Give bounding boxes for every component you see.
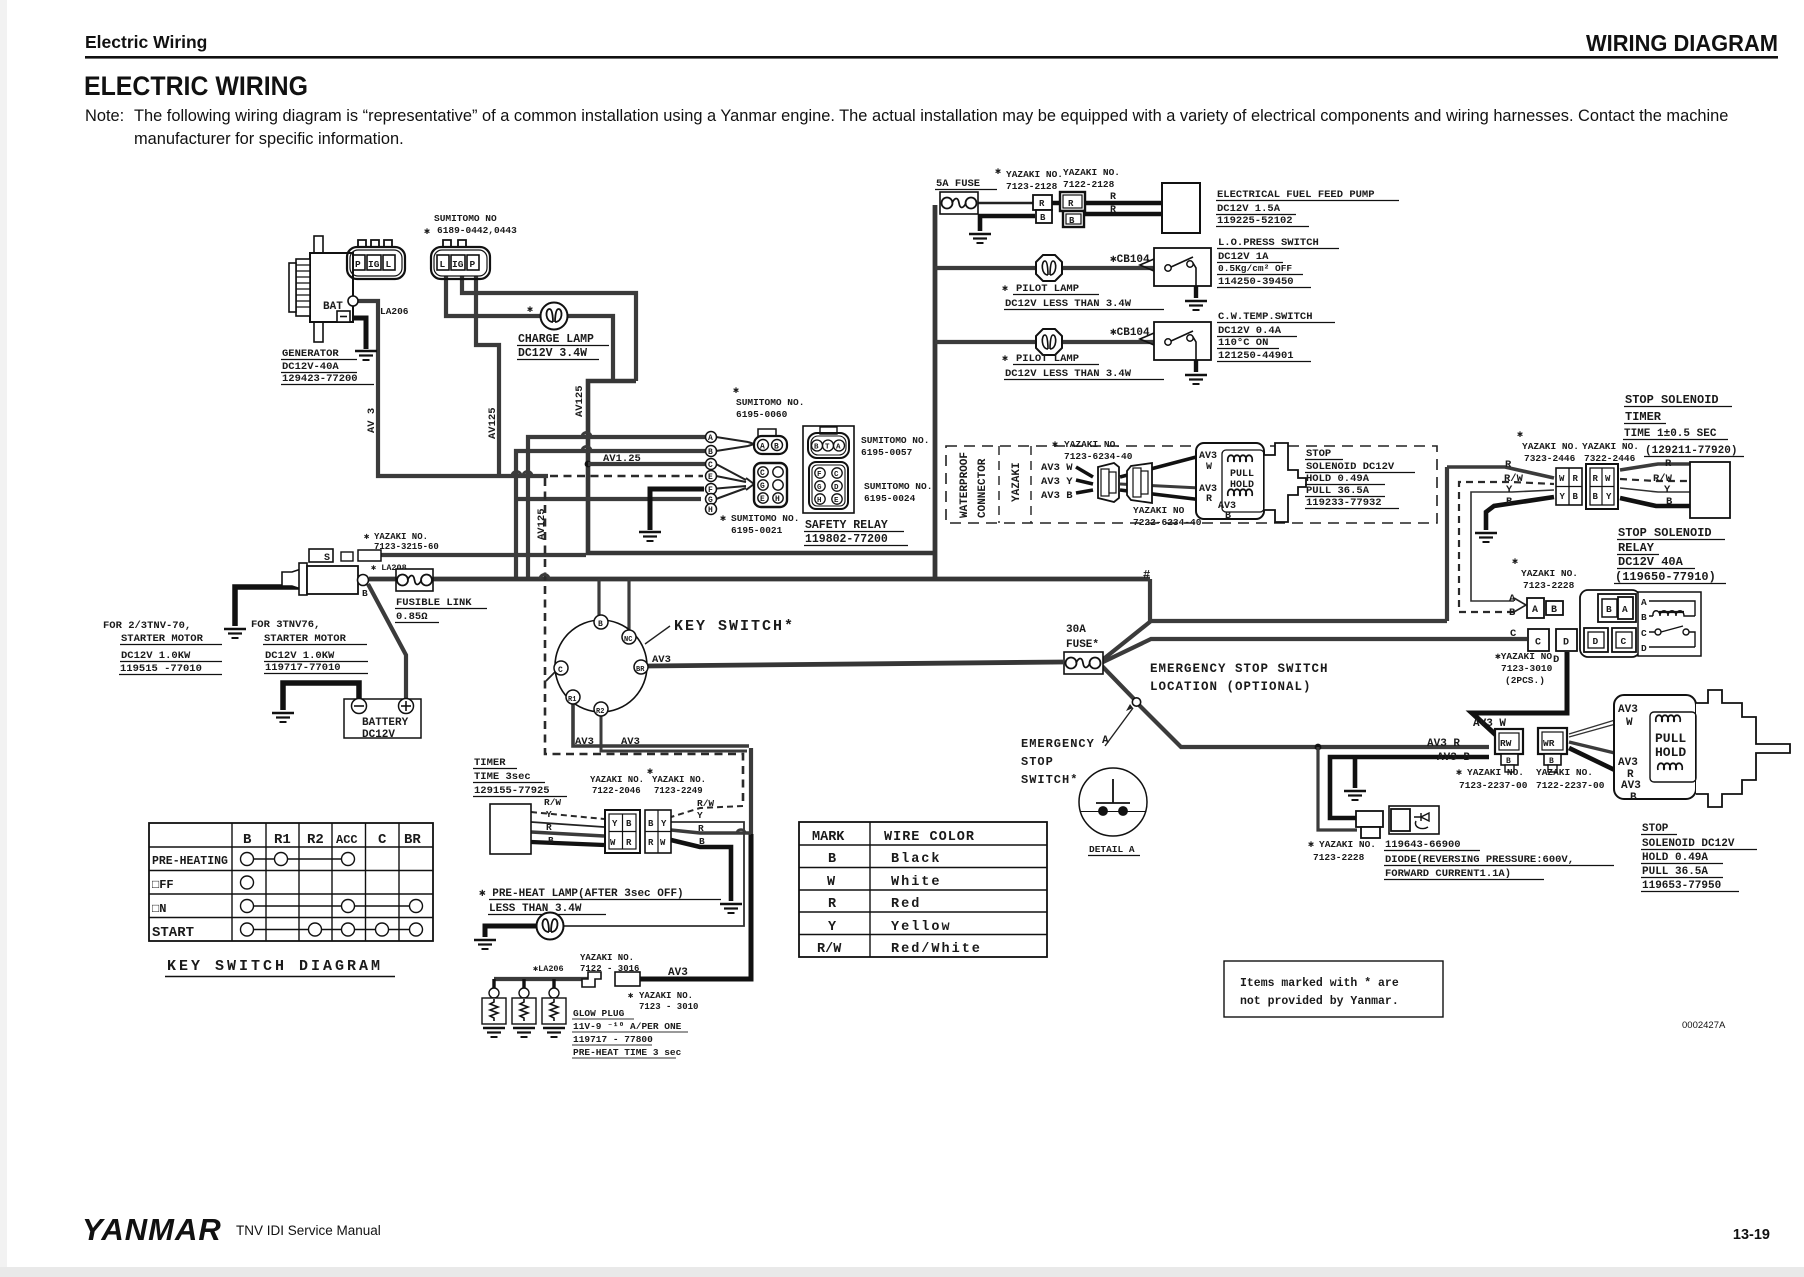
svg-text:Y: Y: [828, 920, 837, 935]
svg-text:Yellow: Yellow: [891, 920, 952, 935]
svg-text:D: D: [1593, 636, 1599, 647]
svg-text:KEY SWITCH DIAGRAM: KEY SWITCH DIAGRAM: [167, 958, 383, 975]
svg-text:TIME 3sec: TIME 3sec: [474, 771, 531, 783]
svg-text:DC12V 1A: DC12V 1A: [1218, 251, 1269, 263]
svg-text:DC12V LESS THAN 3.4W: DC12V LESS THAN 3.4W: [1005, 298, 1132, 310]
svg-text:SUMITOMO NO.: SUMITOMO NO.: [731, 513, 799, 524]
svg-text:YAZAKI NO.: YAZAKI NO.: [1536, 767, 1593, 778]
svg-text:✱: ✱: [424, 227, 430, 238]
svg-text:LESS THAN 3.4W: LESS THAN 3.4W: [489, 903, 582, 915]
svg-text:✱: ✱: [1052, 440, 1058, 451]
svg-text:Y: Y: [697, 810, 703, 821]
svg-text:STARTER MOTOR: STARTER MOTOR: [121, 633, 204, 645]
svg-text:B: B: [1630, 792, 1637, 804]
svg-text:HOLD: HOLD: [1655, 745, 1686, 760]
svg-text:GLOW PLUG: GLOW PLUG: [573, 1008, 625, 1019]
svg-text:✱: ✱: [628, 991, 634, 1001]
svg-text:B: B: [362, 588, 368, 599]
svg-text:Y: Y: [1606, 492, 1612, 502]
svg-text:7322-2446: 7322-2446: [1584, 453, 1636, 464]
svg-text:B: B: [699, 836, 705, 847]
svg-text:B: B: [626, 819, 632, 829]
svg-text:TIME 1±0.5 SEC: TIME 1±0.5 SEC: [1624, 428, 1717, 440]
svg-text:0002427A: 0002427A: [1682, 1020, 1726, 1031]
svg-text:Y: Y: [1664, 484, 1671, 496]
svg-text:KEY SWITCH*: KEY SWITCH*: [674, 618, 795, 635]
svg-text:B: B: [1069, 216, 1075, 226]
svg-text:BR: BR: [636, 666, 645, 674]
svg-text:C: C: [1641, 628, 1647, 639]
svg-text:YAZAKI NO.: YAZAKI NO.: [1521, 568, 1578, 579]
svg-text:R: R: [698, 823, 704, 834]
svg-text:NC: NC: [624, 636, 632, 644]
svg-text:✱YAZAKI NO.: ✱YAZAKI NO.: [1495, 651, 1558, 662]
svg-text:CHARGE LAMP: CHARGE LAMP: [518, 333, 594, 346]
svg-text:Items marked with * are: Items marked with * are: [1240, 977, 1399, 990]
svg-text:Y: Y: [1506, 484, 1513, 496]
svg-text:YAZAKI NO: YAZAKI NO: [1133, 505, 1185, 516]
svg-text:START: START: [152, 925, 194, 941]
svg-text:R: R: [1573, 474, 1579, 484]
svg-text:PRE-HEATING: PRE-HEATING: [152, 855, 228, 868]
svg-text:□N: □N: [152, 902, 166, 916]
svg-text:YAZAKI NO.: YAZAKI NO.: [1319, 839, 1376, 850]
svg-text:30A: 30A: [1066, 624, 1086, 636]
svg-text:A: A: [760, 443, 765, 452]
svg-text:AV3: AV3: [1618, 757, 1638, 769]
svg-text:A: A: [1532, 605, 1538, 616]
svg-text:YAZAKI NO.: YAZAKI NO.: [590, 775, 644, 785]
svg-text:AV 3: AV 3: [366, 408, 378, 433]
svg-text:R/W: R/W: [817, 942, 842, 957]
svg-text:C: C: [1535, 638, 1541, 649]
svg-text:✱: ✱: [733, 386, 739, 397]
svg-text:YAZAKI NO.: YAZAKI NO.: [1063, 167, 1120, 178]
svg-text:0.85Ω: 0.85Ω: [396, 611, 428, 623]
svg-text:Y: Y: [1560, 492, 1566, 502]
svg-text:not provided by Yanmar.: not provided by Yanmar.: [1240, 995, 1399, 1008]
svg-text:R/W: R/W: [697, 798, 714, 809]
svg-text:R2: R2: [596, 708, 604, 716]
svg-text:AV3 Y: AV3 Y: [1041, 476, 1073, 488]
svg-text:AV3: AV3: [621, 736, 640, 748]
svg-text:7123-2228: 7123-2228: [1313, 852, 1365, 863]
svg-text:C: C: [708, 461, 713, 470]
svg-text:W: W: [660, 838, 666, 848]
svg-text:WR: WR: [1543, 738, 1555, 749]
svg-text:YAZAKI: YAZAKI: [1011, 462, 1023, 502]
svg-text:DIODE(REVERSING PRESSURE:600V,: DIODE(REVERSING PRESSURE:600V,: [1385, 854, 1574, 866]
svg-text:6189-0442,0443: 6189-0442,0443: [437, 225, 517, 236]
svg-text:SWITCH*: SWITCH*: [1021, 773, 1078, 787]
svg-text:D: D: [1553, 654, 1559, 666]
svg-text:P: P: [355, 259, 361, 270]
svg-text:PRE-HEAT TIME 3 sec: PRE-HEAT TIME 3 sec: [573, 1047, 682, 1058]
svg-text:B: B: [828, 852, 836, 867]
svg-text:DC12V-40A: DC12V-40A: [282, 361, 339, 373]
svg-text:✱: ✱: [1308, 840, 1314, 851]
svg-text:DC12V LESS THAN 3.4W: DC12V LESS THAN 3.4W: [1005, 368, 1132, 380]
svg-text:7122-2046: 7122-2046: [592, 786, 641, 796]
svg-text:IG: IG: [452, 259, 464, 270]
svg-text:R: R: [1206, 494, 1212, 505]
svg-text:TIMER: TIMER: [1625, 410, 1662, 424]
svg-text:R: R: [1593, 474, 1599, 484]
svg-text:119515 -77010: 119515 -77010: [120, 663, 202, 675]
svg-text:L: L: [386, 259, 392, 270]
svg-text:WIRE COLOR: WIRE COLOR: [884, 830, 975, 845]
svg-text:S: S: [324, 553, 330, 564]
svg-text:7123 - 3010: 7123 - 3010: [639, 1002, 698, 1012]
svg-text:R1: R1: [274, 832, 291, 848]
svg-text:7123-3010: 7123-3010: [1501, 663, 1553, 674]
svg-text:SOLENOID DC12V: SOLENOID DC12V: [1642, 838, 1735, 850]
svg-text:YAZAKI NO.: YAZAKI NO.: [1064, 439, 1121, 450]
svg-text:YAZAKI NO.: YAZAKI NO.: [1522, 441, 1579, 452]
svg-text:13-19: 13-19: [1733, 1227, 1770, 1243]
svg-text:PULL 36.5A: PULL 36.5A: [1642, 866, 1708, 878]
svg-text:YAZAKI NO.: YAZAKI NO.: [652, 775, 706, 785]
svg-text:119802-77200: 119802-77200: [805, 533, 888, 546]
svg-text:✱: ✱: [995, 167, 1001, 178]
svg-text:FOR 3TNV76,: FOR 3TNV76,: [251, 619, 320, 631]
svg-text:110°C ON: 110°C ON: [1218, 337, 1268, 349]
svg-text:Y: Y: [546, 809, 552, 820]
svg-text:Y: Y: [661, 819, 667, 829]
svg-text:DC12V: DC12V: [362, 729, 395, 741]
svg-text:F: F: [708, 486, 713, 495]
svg-text:(129211-77920): (129211-77920): [1645, 445, 1737, 457]
svg-text:7123-2228: 7123-2228: [1523, 580, 1575, 591]
svg-text:W: W: [1559, 474, 1565, 484]
svg-text:AV3 B: AV3 B: [1041, 490, 1073, 502]
svg-text:121250-44901: 121250-44901: [1218, 350, 1294, 362]
svg-text:119233-77932: 119233-77932: [1306, 497, 1382, 509]
svg-text:B: B: [1549, 757, 1554, 766]
svg-text:EMERGENCY STOP SWITCH: EMERGENCY STOP SWITCH: [1150, 662, 1329, 676]
svg-text:B: B: [774, 443, 779, 452]
svg-text:B: B: [1506, 496, 1513, 508]
svg-text:L: L: [440, 259, 446, 270]
svg-text:6195-0021: 6195-0021: [731, 525, 783, 536]
svg-text:B: B: [1666, 496, 1673, 508]
svg-text:119643-66900: 119643-66900: [1385, 839, 1461, 851]
svg-text:✱: ✱: [1002, 284, 1008, 295]
svg-text:A: A: [1102, 735, 1109, 747]
svg-text:7323-2446: 7323-2446: [1524, 453, 1576, 464]
svg-text:TNV IDI Service Manual: TNV IDI Service Manual: [236, 1223, 381, 1238]
svg-text:PILOT LAMP: PILOT LAMP: [1016, 283, 1079, 295]
svg-text:Red: Red: [891, 897, 921, 912]
svg-text:✱: ✱: [364, 532, 370, 542]
svg-text:H: H: [775, 495, 780, 504]
svg-text:MARK: MARK: [812, 830, 845, 845]
svg-text:ACC: ACC: [336, 833, 358, 847]
svg-text:119653-77950: 119653-77950: [1642, 880, 1721, 892]
svg-text:DC12V 0.4A: DC12V 0.4A: [1218, 325, 1282, 337]
svg-text:HOLD: HOLD: [1230, 480, 1254, 491]
svg-text:✱: ✱: [1002, 354, 1008, 365]
svg-text:✱ PRE-HEAT LAMP(AFTER 3sec OFF: ✱ PRE-HEAT LAMP(AFTER 3sec OFF): [479, 888, 684, 900]
svg-text:SUMITOMO NO: SUMITOMO NO: [434, 213, 497, 224]
svg-text:0.5Kg/cm² OFF: 0.5Kg/cm² OFF: [1218, 263, 1292, 274]
svg-text:B: B: [814, 444, 819, 452]
svg-text:B: B: [1509, 607, 1516, 619]
svg-text:W: W: [1206, 462, 1212, 473]
svg-text:STOP SOLENOID: STOP SOLENOID: [1625, 393, 1719, 407]
svg-text:A: A: [1509, 593, 1516, 605]
svg-text:7222-6234-40: 7222-6234-40: [1133, 517, 1202, 528]
svg-text:ELECTRICAL FUEL FEED PUMP: ELECTRICAL FUEL FEED PUMP: [1217, 189, 1375, 201]
svg-text:C.W.TEMP.SWITCH: C.W.TEMP.SWITCH: [1218, 311, 1313, 323]
svg-text:The following wiring diagram i: The following wiring diagram is “represe…: [134, 107, 1728, 125]
svg-text:B: B: [1506, 757, 1511, 766]
svg-text:R: R: [1039, 199, 1045, 209]
svg-text:129155-77925: 129155-77925: [474, 785, 550, 797]
svg-text:HOLD 0.49A: HOLD 0.49A: [1642, 852, 1708, 864]
svg-text:FOR 2/3TNV-70,: FOR 2/3TNV-70,: [103, 620, 191, 632]
svg-text:(2PCS.): (2PCS.): [1505, 675, 1545, 686]
svg-text:AV3: AV3: [1621, 780, 1641, 792]
svg-text:IG: IG: [368, 259, 380, 270]
svg-text:7122-2128: 7122-2128: [1063, 179, 1115, 190]
svg-text:R: R: [1068, 199, 1074, 209]
svg-text:Electric Wiring: Electric Wiring: [85, 32, 207, 52]
svg-text:manufacturer for specific info: manufacturer for specific information.: [134, 130, 404, 148]
svg-text:7123-6234-40: 7123-6234-40: [1064, 451, 1133, 462]
svg-text:W: W: [827, 875, 836, 890]
svg-text:B: B: [708, 448, 713, 457]
svg-text:#: #: [1143, 568, 1150, 582]
svg-text:D: D: [1641, 643, 1647, 654]
svg-text:BAT: BAT: [323, 301, 343, 313]
svg-text:AV3 W: AV3 W: [1041, 462, 1073, 474]
svg-text:7123-2128: 7123-2128: [1006, 181, 1058, 192]
svg-text:BATTERY: BATTERY: [362, 717, 409, 729]
svg-text:✱LA206: ✱LA206: [533, 964, 564, 974]
svg-text:A: A: [1641, 597, 1647, 608]
svg-text:A: A: [1622, 604, 1628, 615]
svg-text:B: B: [1593, 492, 1599, 502]
svg-text:E: E: [834, 497, 839, 505]
svg-text:AV3: AV3: [1199, 451, 1217, 462]
svg-text:✱: ✱: [527, 305, 533, 316]
svg-text:✱: ✱: [1512, 557, 1518, 568]
svg-text:AV3 R: AV3 R: [1427, 738, 1460, 750]
svg-text:BR: BR: [404, 832, 421, 848]
svg-text:B: B: [1040, 213, 1046, 223]
svg-text:7123-3215-60: 7123-3215-60: [374, 542, 439, 552]
svg-text:YAZAKI NO.: YAZAKI NO.: [580, 953, 634, 963]
svg-text:C: C: [558, 666, 563, 675]
svg-text:R/W: R/W: [544, 797, 561, 808]
svg-text:AV3: AV3: [652, 654, 671, 666]
svg-text:SOLENOID DC12V: SOLENOID DC12V: [1306, 461, 1395, 473]
svg-text:SUMITOMO NO.: SUMITOMO NO.: [864, 481, 932, 492]
svg-text:AV125: AV125: [487, 407, 499, 439]
svg-text:YANMAR: YANMAR: [82, 1212, 222, 1247]
svg-text:B: B: [1573, 492, 1579, 502]
svg-text:SUMITOMO NO.: SUMITOMO NO.: [736, 397, 804, 408]
svg-text:STOP SOLENOID: STOP SOLENOID: [1618, 526, 1712, 540]
svg-text:(119650-77910): (119650-77910): [1615, 570, 1716, 584]
svg-text:W: W: [1605, 474, 1611, 484]
svg-text:T: T: [825, 444, 830, 452]
svg-text:5A FUSE: 5A FUSE: [936, 178, 980, 190]
svg-text:W: W: [1626, 717, 1633, 729]
svg-text:DC12V 1.0KW: DC12V 1.0KW: [265, 650, 335, 662]
svg-text:D: D: [834, 484, 839, 492]
svg-text:B: B: [1606, 604, 1612, 615]
svg-text:E: E: [760, 495, 765, 504]
svg-text:PULL 36.5A: PULL 36.5A: [1306, 485, 1370, 497]
svg-text:7123-2237-00: 7123-2237-00: [1459, 780, 1528, 791]
svg-text:A: A: [708, 434, 713, 443]
svg-text:AV3: AV3: [668, 967, 688, 979]
svg-text:R: R: [648, 838, 654, 848]
svg-text:G: G: [817, 484, 822, 492]
svg-text:✱: ✱: [1456, 768, 1462, 779]
svg-text:R: R: [1505, 459, 1512, 471]
svg-text:D: D: [1563, 638, 1569, 649]
svg-text:EMERGENCY: EMERGENCY: [1021, 737, 1095, 751]
svg-text:C: C: [1510, 628, 1517, 640]
svg-text:YAZAKI NO.: YAZAKI NO.: [1582, 441, 1639, 452]
svg-text:AV125: AV125: [536, 508, 548, 540]
svg-text:6195-0060: 6195-0060: [736, 409, 788, 420]
svg-text:Black: Black: [891, 852, 942, 867]
svg-text:R1: R1: [568, 696, 576, 704]
svg-text:C: C: [834, 471, 839, 479]
svg-text:SUMITOMO NO.: SUMITOMO NO.: [861, 435, 929, 446]
svg-text:G: G: [708, 496, 713, 505]
svg-text:119717-77010: 119717-77010: [265, 662, 341, 674]
svg-text:WIRING DIAGRAM: WIRING DIAGRAM: [1586, 30, 1778, 56]
svg-text:129423-77200: 129423-77200: [282, 373, 358, 385]
svg-text:119717 - 77800: 119717 - 77800: [573, 1034, 653, 1045]
svg-text:GENERATOR: GENERATOR: [282, 348, 339, 360]
svg-text:B: B: [1225, 511, 1231, 522]
svg-text:YAZAKI NO.: YAZAKI NO.: [374, 532, 428, 542]
svg-text:SAFETY RELAY: SAFETY RELAY: [805, 519, 888, 532]
svg-text:R: R: [1110, 205, 1116, 216]
svg-text:P: P: [470, 259, 476, 270]
svg-text:AV1.25: AV1.25: [603, 453, 641, 465]
svg-text:7122-2237-00: 7122-2237-00: [1536, 780, 1605, 791]
svg-text:✱: ✱: [1517, 430, 1523, 441]
svg-text:DC12V 1.5A: DC12V 1.5A: [1217, 203, 1281, 215]
svg-text:6195-0057: 6195-0057: [861, 447, 913, 458]
svg-text:□FF: □FF: [152, 878, 174, 892]
svg-text:B: B: [598, 620, 603, 629]
svg-text:R2: R2: [307, 832, 324, 848]
svg-text:6195-0024: 6195-0024: [864, 493, 916, 504]
svg-text:PULL: PULL: [1655, 731, 1686, 746]
svg-text:R: R: [546, 822, 552, 833]
svg-text:STOP: STOP: [1021, 755, 1054, 769]
svg-text:R: R: [1110, 192, 1116, 203]
svg-text:W: W: [610, 838, 616, 848]
svg-text:AV3: AV3: [575, 736, 594, 748]
svg-text:ELECTRIC WIRING: ELECTRIC WIRING: [84, 71, 308, 101]
svg-text:R: R: [828, 897, 837, 912]
svg-text:R: R: [1665, 458, 1672, 470]
svg-text:PULL: PULL: [1230, 469, 1254, 480]
svg-text:C: C: [378, 832, 387, 848]
svg-text:WATERPROOF: WATERPROOF: [959, 452, 971, 518]
svg-text:Y: Y: [612, 819, 618, 829]
svg-text:C: C: [1621, 636, 1627, 647]
svg-text:F: F: [817, 471, 822, 479]
svg-text:B: B: [1641, 612, 1647, 623]
svg-text:TIMER: TIMER: [474, 757, 506, 769]
svg-text:DC12V 3.4W: DC12V 3.4W: [518, 347, 587, 360]
svg-text:FUSIBLE LINK: FUSIBLE LINK: [396, 597, 472, 609]
svg-text:11V-9 ⁻¹⁰ A/PER ONE: 11V-9 ⁻¹⁰ A/PER ONE: [573, 1021, 682, 1032]
svg-text:L.O.PRESS SWITCH: L.O.PRESS SWITCH: [1218, 237, 1319, 249]
svg-text:A: A: [836, 444, 841, 452]
svg-text:FORWARD CURRENT1.1A): FORWARD CURRENT1.1A): [1385, 868, 1511, 880]
svg-text:HOLD 0.49A: HOLD 0.49A: [1306, 473, 1370, 485]
svg-text:YAZAKI NO.: YAZAKI NO.: [639, 991, 693, 1001]
svg-text:C: C: [760, 469, 765, 478]
svg-text:G: G: [760, 482, 765, 491]
svg-text:FUSE*: FUSE*: [1066, 639, 1099, 651]
svg-text:119225-52102: 119225-52102: [1217, 215, 1293, 227]
svg-text:STOP: STOP: [1642, 823, 1669, 835]
svg-text:AV125: AV125: [574, 385, 586, 417]
svg-text:R: R: [626, 838, 632, 848]
svg-text:CONNECTOR: CONNECTOR: [977, 458, 989, 518]
svg-text:B: B: [243, 832, 252, 848]
svg-text:LOCATION (OPTIONAL): LOCATION (OPTIONAL): [1150, 680, 1312, 694]
svg-text:YAZAKI NO.: YAZAKI NO.: [1467, 767, 1524, 778]
svg-text:B: B: [648, 819, 654, 829]
svg-text:YAZAKI NO.: YAZAKI NO.: [1006, 169, 1063, 180]
svg-text:114250-39450: 114250-39450: [1218, 276, 1294, 288]
svg-text:RW: RW: [1500, 738, 1512, 749]
svg-text:STOP: STOP: [1306, 448, 1331, 460]
svg-text:✱: ✱: [720, 514, 726, 525]
svg-text:LA206: LA206: [380, 306, 409, 317]
svg-text:H: H: [817, 497, 822, 505]
svg-text:White: White: [891, 875, 942, 890]
svg-text:AV3 B: AV3 B: [1437, 752, 1470, 764]
svg-text:PILOT LAMP: PILOT LAMP: [1016, 353, 1079, 365]
svg-text:✱: ✱: [647, 767, 653, 778]
svg-text:H: H: [708, 506, 713, 515]
svg-text:STARTER MOTOR: STARTER MOTOR: [264, 633, 347, 645]
svg-text:DC12V 40A: DC12V 40A: [1618, 555, 1684, 569]
svg-text:RELAY: RELAY: [1618, 541, 1655, 555]
svg-text:E: E: [708, 473, 713, 482]
svg-text:Red/White: Red/White: [891, 942, 982, 957]
svg-text:DC12V 1.0KW: DC12V 1.0KW: [121, 650, 191, 662]
svg-text:B: B: [548, 835, 554, 846]
svg-text:B: B: [1551, 605, 1557, 616]
svg-text:DETAIL A: DETAIL A: [1089, 844, 1135, 855]
svg-text:7123-2249: 7123-2249: [654, 786, 703, 796]
svg-text:AV3: AV3: [1618, 704, 1638, 716]
svg-text:Note:: Note:: [85, 107, 124, 125]
svg-text:✱CB104: ✱CB104: [1110, 254, 1150, 266]
